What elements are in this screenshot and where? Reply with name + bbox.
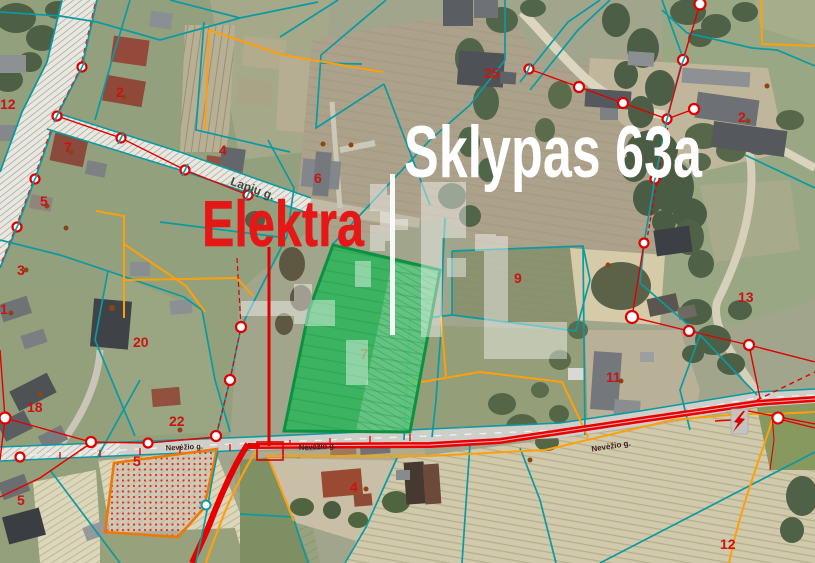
svg-text:2: 2 [738,109,746,125]
svg-text:Elektra: Elektra [202,187,365,260]
svg-text:18: 18 [27,399,43,415]
svg-text:5: 5 [40,193,48,209]
svg-text:25: 25 [484,65,500,81]
svg-text:4: 4 [219,142,227,158]
svg-text:12: 12 [0,96,16,112]
svg-text:13: 13 [738,289,754,305]
svg-text:1: 1 [0,301,8,317]
svg-text:9: 9 [514,270,522,286]
svg-text:2: 2 [116,84,124,100]
svg-text:22: 22 [169,413,185,429]
svg-text:3: 3 [17,262,25,278]
svg-text:12: 12 [720,536,736,552]
svg-text:11: 11 [606,369,621,385]
svg-text:5: 5 [17,492,25,508]
svg-text:5: 5 [133,453,141,469]
svg-text:20: 20 [133,334,149,350]
svg-text:Sklypas 63a: Sklypas 63a [404,112,703,193]
svg-text:6: 6 [314,170,322,186]
svg-text:4: 4 [350,479,358,495]
svg-text:7: 7 [64,139,72,155]
